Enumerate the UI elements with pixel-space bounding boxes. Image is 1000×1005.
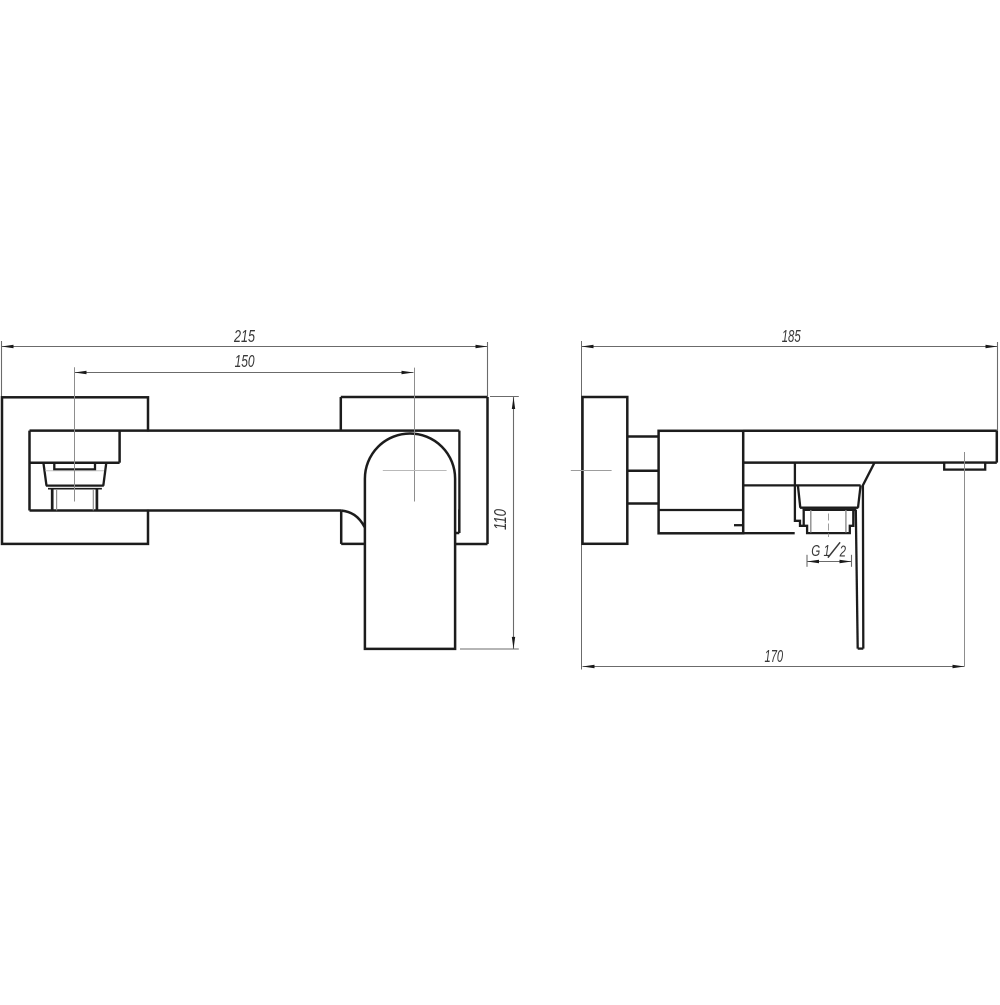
svg-text:G 1: G 1 <box>811 542 830 560</box>
svg-text:150: 150 <box>235 351 255 371</box>
svg-text:215: 215 <box>233 326 255 346</box>
svg-text:185: 185 <box>782 326 801 346</box>
svg-text:110: 110 <box>490 509 510 530</box>
svg-text:170: 170 <box>765 646 784 666</box>
svg-text:2: 2 <box>839 542 846 560</box>
